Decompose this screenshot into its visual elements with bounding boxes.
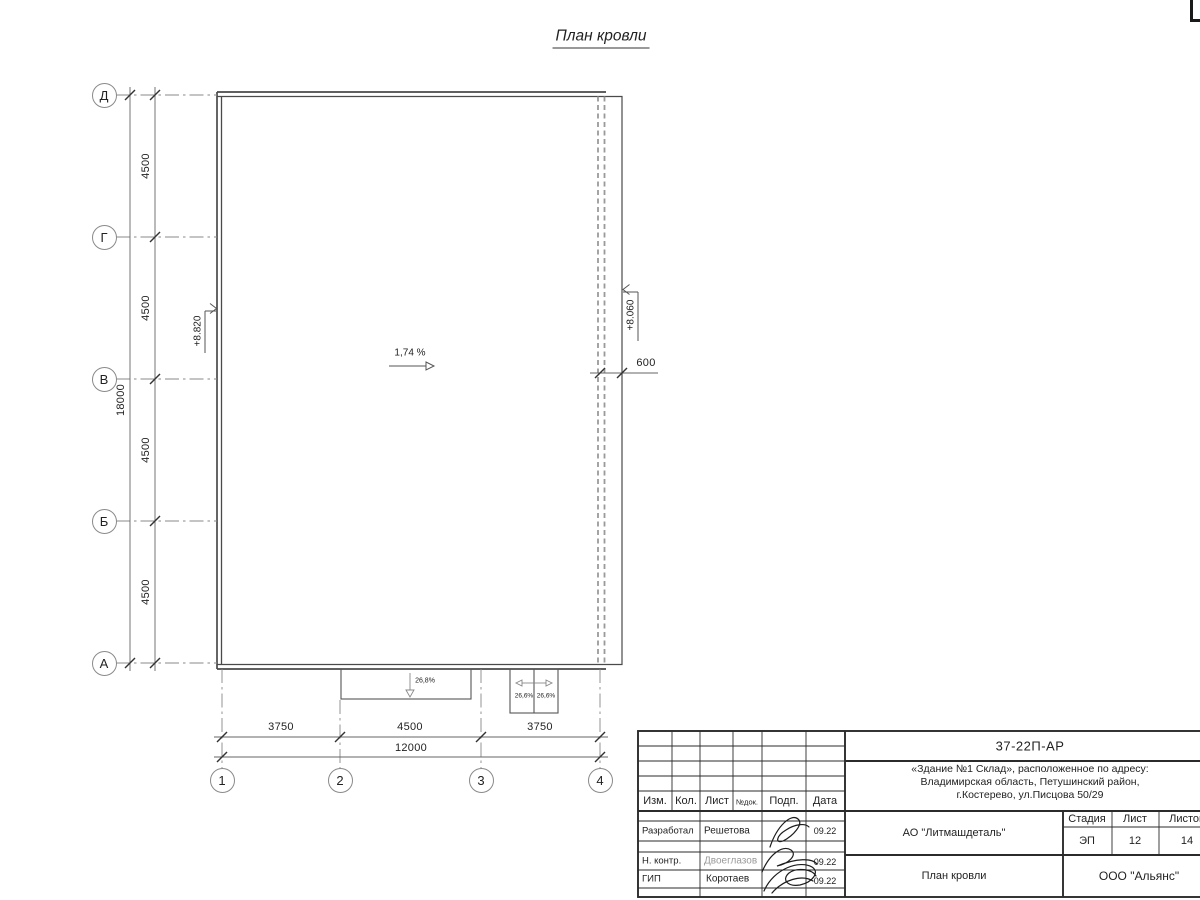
tb-header-kol: Кол. — [675, 795, 697, 807]
tb-date-2: 09.22 — [814, 857, 837, 867]
axis-bubble-col-2: 2 — [328, 768, 353, 793]
axis-lines — [116, 95, 600, 768]
dim-bottom-1: 3750 — [268, 721, 294, 733]
dim-left-3: 4500 — [140, 437, 152, 463]
axis-label: Д — [100, 88, 109, 103]
canopy-slope-label: 26,8% — [415, 678, 435, 685]
axis-bubble-col-4: 4 — [588, 768, 613, 793]
tb-header-izm: Изм. — [643, 795, 667, 807]
canopy-1 — [341, 669, 471, 699]
signature-scribbles — [762, 818, 817, 893]
axis-bubble-row-b: Б — [92, 509, 117, 534]
tb-date-1: 09.22 — [814, 826, 837, 836]
axis-label: Г — [100, 230, 107, 245]
dim-left-4: 4500 — [140, 579, 152, 605]
axis-label: 4 — [596, 773, 603, 788]
tb-header-data: Дата — [813, 795, 837, 807]
axis-bubble-row-d: Д — [92, 83, 117, 108]
axis-bubble-col-3: 3 — [469, 768, 494, 793]
axis-label: А — [100, 656, 109, 671]
tb-name-reshetova: Решетова — [704, 826, 750, 837]
tb-role-nkontr: Н. контр. — [642, 856, 681, 867]
canopy-2 — [510, 669, 558, 713]
dimension-ticks — [125, 90, 627, 762]
project-address-line1: «Здание №1 Склад», расположенное по адре… — [911, 763, 1148, 775]
sheet-label: Лист — [1123, 813, 1147, 825]
project-address-line3: г.Костерево, ул.Писцова 50/29 — [957, 789, 1104, 801]
client-name: АО "Литмашдеталь" — [903, 827, 1006, 839]
tb-name-korotaev: Коротаев — [706, 874, 749, 885]
axis-label: 3 — [477, 773, 484, 788]
hidden-wall-dashed-lines — [598, 97, 605, 665]
tb-date-3: 09.22 — [814, 876, 837, 886]
stage-label: Стадия — [1068, 813, 1106, 825]
axis-bubble-row-v: В — [92, 367, 117, 392]
axis-bubble-row-g: Г — [92, 225, 117, 250]
company-name: ООО "Альянс" — [1099, 869, 1179, 883]
dim-bottom-3: 3750 — [527, 721, 553, 733]
dim-left-2: 4500 — [140, 295, 152, 321]
canopy2-slope-right-label: 26,6% — [537, 693, 555, 700]
dimension-lines — [130, 87, 658, 757]
drawing-name: План кровли — [922, 870, 987, 882]
sheets-value: 14 — [1181, 835, 1193, 847]
dim-bottom-total: 12000 — [395, 742, 427, 754]
roof-slope-label: 1,74 % — [394, 348, 425, 359]
sheet-value: 12 — [1129, 835, 1141, 847]
roof-overhang-edge — [606, 97, 622, 665]
doc-number: 37-22П-АР — [996, 739, 1065, 754]
dim-bottom-2: 4500 — [397, 721, 423, 733]
axis-bubble-col-1: 1 — [210, 768, 235, 793]
stage-value: ЭП — [1079, 835, 1095, 847]
dim-overhang: 600 — [636, 357, 655, 369]
tb-name-dvoeglazov: Двоеглазов — [704, 856, 757, 867]
axis-label: 2 — [336, 773, 343, 788]
axis-label: В — [100, 372, 109, 387]
tb-header-ndok: №док. — [736, 798, 758, 807]
tb-role-razrabotal: Разработал — [642, 826, 694, 837]
tb-header-list: Лист — [705, 795, 729, 807]
elevation-mark-left — [205, 304, 217, 354]
slope-arrow — [389, 362, 434, 370]
building-outline — [217, 92, 622, 669]
tb-role-gip: ГИП — [642, 874, 661, 885]
sheets-label: Листов — [1169, 813, 1200, 825]
elevation-left-label: +8.820 — [193, 316, 204, 347]
dim-left-total: 18000 — [115, 384, 127, 416]
canopy2-slope-left-label: 26,6% — [515, 693, 533, 700]
project-address-line2: Владимирская область, Петушинский район, — [920, 776, 1139, 788]
axis-bubble-row-a: А — [92, 651, 117, 676]
dim-left-1: 4500 — [140, 153, 152, 179]
axis-label: 1 — [218, 773, 225, 788]
tb-header-podp: Подп. — [769, 795, 798, 807]
elevation-right-label: +8.060 — [626, 300, 637, 331]
axis-label: Б — [100, 514, 109, 529]
drawing-sheet: План кровли — [0, 0, 1200, 900]
